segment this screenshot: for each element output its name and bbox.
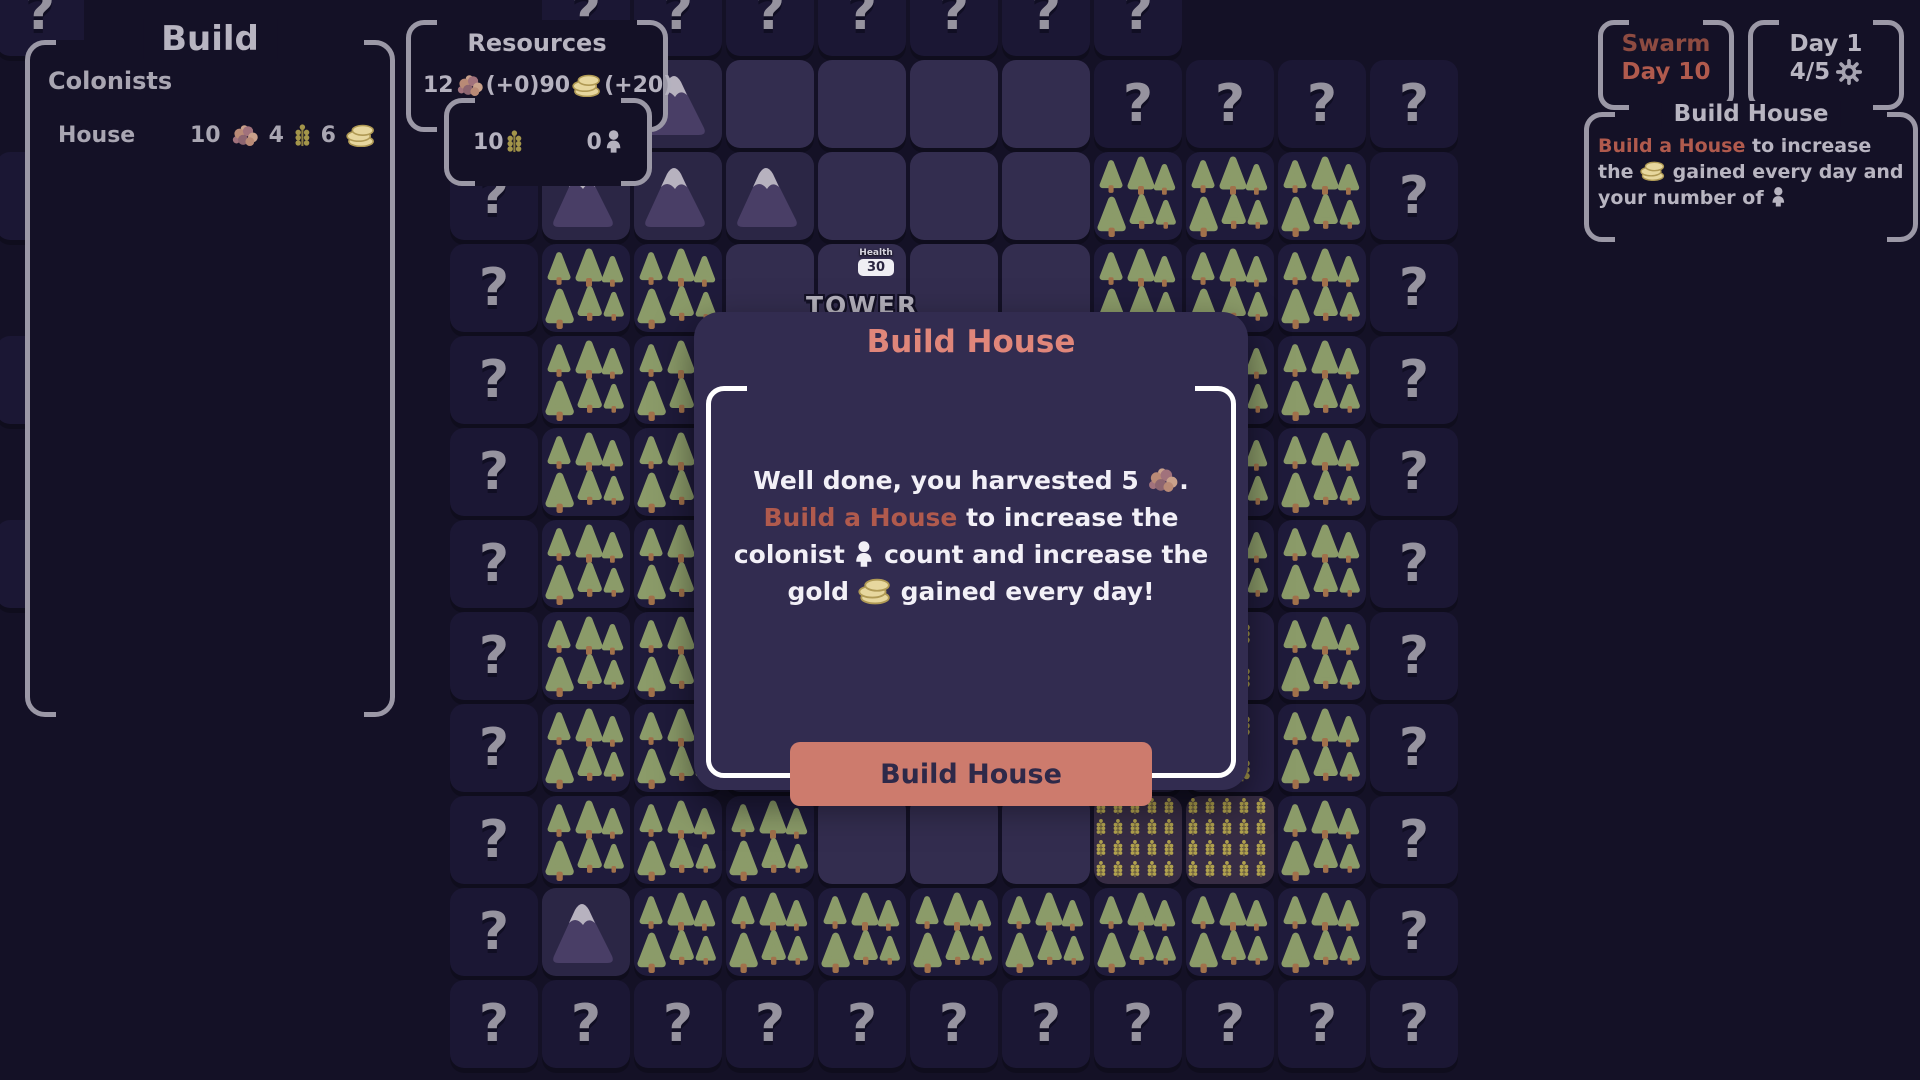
modal-body-line: Build a House to increase the [714, 499, 1228, 536]
tile-forest[interactable] [1278, 152, 1366, 240]
question-mark-glyph: ? [939, 994, 969, 1054]
coins-icon [346, 124, 376, 147]
resources-row-primary: 12 (+0) 90 (+20) [423, 73, 655, 98]
question-mark-glyph: ? [663, 994, 693, 1054]
tile-forest[interactable] [1278, 888, 1366, 976]
question-mark-glyph: ? [1399, 994, 1429, 1054]
tile-forest[interactable] [1278, 520, 1366, 608]
question-mark-glyph: ? [571, 994, 601, 1054]
tile-unknown[interactable]: ? [450, 704, 538, 792]
tile-unknown[interactable]: ? [1186, 980, 1274, 1068]
gold-resource: 90 (+20) [539, 73, 673, 98]
tile-unknown[interactable]: ? [1370, 888, 1458, 976]
tile-forest[interactable] [1186, 888, 1274, 976]
tile-forest[interactable] [1278, 336, 1366, 424]
game-stage: ??????? ????? [0, 0, 1920, 1080]
tile-unknown[interactable]: ? [450, 888, 538, 976]
wheat-icon [294, 124, 311, 147]
question-mark-glyph: ? [479, 718, 509, 778]
swarm-day: Day 10 [1603, 59, 1729, 85]
tile-forest[interactable] [1002, 888, 1090, 976]
question-mark-glyph: ? [1123, 74, 1153, 134]
tile-unknown[interactable]: ? [450, 520, 538, 608]
tile-forest[interactable] [1278, 244, 1366, 332]
tile-unknown[interactable]: ? [726, 980, 814, 1068]
tile-forest[interactable] [634, 888, 722, 976]
question-mark-glyph: ? [1031, 0, 1061, 42]
question-mark-glyph: ? [1399, 810, 1429, 870]
tile-unknown[interactable]: ? [910, 980, 998, 1068]
tile-unknown[interactable]: ? [1002, 980, 1090, 1068]
tile-unknown[interactable]: ? [1370, 980, 1458, 1068]
build-item-label: House [58, 123, 135, 148]
question-mark-glyph: ? [755, 994, 785, 1054]
question-mark-glyph: ? [479, 442, 509, 502]
day-progress-row: 4/5 [1753, 59, 1899, 85]
tile-cleared[interactable] [726, 60, 814, 148]
day-progress: 4/5 [1790, 59, 1830, 85]
question-mark-glyph: ? [1307, 994, 1337, 1054]
resources-row-secondary: 10 0 [473, 103, 623, 181]
question-mark-glyph: ? [939, 0, 969, 42]
resources-subpanel: 10 0 [444, 98, 652, 186]
question-mark-glyph: ? [1399, 74, 1429, 134]
tile-wheat-field[interactable] [1186, 796, 1274, 884]
wood-resource: 12 (+0) [423, 73, 539, 98]
tile-unknown[interactable]: ? [1094, 60, 1182, 148]
question-mark-glyph: ? [479, 534, 509, 594]
question-mark-glyph: ? [1307, 74, 1337, 134]
tile-cleared[interactable] [1002, 152, 1090, 240]
question-mark-glyph: ? [1399, 350, 1429, 410]
tile-forest[interactable] [910, 888, 998, 976]
build-house-info-panel: Build House Build a House to increase th… [1584, 112, 1918, 242]
tile-unknown[interactable]: ? [450, 336, 538, 424]
tile-unknown[interactable]: ? [1370, 152, 1458, 240]
tile-forest[interactable] [542, 612, 630, 700]
question-mark-glyph: ? [1123, 0, 1153, 42]
tile-unknown[interactable]: ? [450, 796, 538, 884]
tile-forest[interactable] [542, 428, 630, 516]
tile-forest[interactable] [1186, 152, 1274, 240]
tile-unknown[interactable]: ? [542, 980, 630, 1068]
tile-forest[interactable] [726, 796, 814, 884]
tile-cleared[interactable] [818, 60, 906, 148]
tile-mountain[interactable] [542, 888, 630, 976]
tower-health-badge: Health30 [858, 248, 894, 276]
tile-unknown[interactable]: ? [1278, 980, 1366, 1068]
question-mark-glyph: ? [479, 810, 509, 870]
tile-forest[interactable] [542, 520, 630, 608]
info-panel-title: Build House [1662, 101, 1841, 127]
person-icon [853, 541, 875, 567]
modal-body: Well done, you harvested 5 . Build a Hou… [714, 462, 1228, 610]
coins-icon [572, 74, 602, 97]
resources-title: Resources [411, 29, 663, 57]
tile-cleared[interactable] [818, 152, 906, 240]
tile-cleared[interactable] [1002, 796, 1090, 884]
wheat-icon [506, 130, 523, 153]
tile-forest[interactable] [818, 888, 906, 976]
question-mark-glyph: ? [479, 350, 509, 410]
wheat-resource: 10 [473, 130, 522, 155]
person-icon [1770, 187, 1787, 207]
question-mark-glyph: ? [1215, 74, 1245, 134]
tile-mountain[interactable] [726, 152, 814, 240]
modal-title: Build House [694, 324, 1248, 360]
tile-unknown[interactable]: ? [1370, 796, 1458, 884]
question-mark-glyph: ? [1215, 994, 1245, 1054]
gear-icon[interactable] [1836, 59, 1862, 85]
tile-unknown[interactable]: ? [818, 0, 906, 56]
question-mark-glyph: ? [1399, 718, 1429, 778]
question-mark-glyph: ? [25, 0, 55, 42]
tile-unknown[interactable]: ? [1370, 244, 1458, 332]
berries-icon [1147, 467, 1179, 493]
question-mark-glyph: ? [1399, 902, 1429, 962]
coins-icon [858, 578, 892, 604]
tile-unknown[interactable]: ? [1370, 612, 1458, 700]
question-mark-glyph: ? [1399, 626, 1429, 686]
day-counter: Day 1 [1753, 31, 1899, 57]
question-mark-glyph: ? [1123, 994, 1153, 1054]
question-mark-glyph: ? [847, 0, 877, 42]
info-panel-body: Build a House to increase the gained eve… [1598, 133, 1907, 211]
tile-cleared[interactable] [910, 60, 998, 148]
question-mark-glyph: ? [1031, 994, 1061, 1054]
tile-cleared[interactable] [910, 796, 998, 884]
tile-forest[interactable] [542, 796, 630, 884]
tile-unknown[interactable]: ? [1186, 60, 1274, 148]
tile-forest[interactable] [1094, 152, 1182, 240]
tile-unknown[interactable]: ? [1370, 704, 1458, 792]
tile-unknown[interactable]: ? [1278, 60, 1366, 148]
tile-unknown[interactable]: ? [1370, 428, 1458, 516]
question-mark-glyph: ? [479, 994, 509, 1054]
modal-body-line: gold gained every day! [714, 573, 1228, 610]
tile-forest[interactable] [726, 888, 814, 976]
build-house-button[interactable]: Build House [790, 742, 1152, 806]
tile-unknown[interactable]: ? [1094, 0, 1182, 56]
swarm-panel: Swarm Day 10 [1598, 20, 1734, 110]
berries-icon [456, 74, 484, 97]
tile-wheat-field[interactable] [1094, 796, 1182, 884]
question-mark-glyph: ? [479, 626, 509, 686]
tile-unknown[interactable]: ? [1002, 0, 1090, 56]
tile-forest[interactable] [1278, 428, 1366, 516]
swarm-title: Swarm [1603, 31, 1729, 57]
question-mark-glyph: ? [847, 994, 877, 1054]
berries-icon [231, 124, 259, 147]
tile-cleared[interactable] [1002, 60, 1090, 148]
tile-unknown[interactable]: ? [1370, 520, 1458, 608]
coins-icon [1640, 161, 1666, 181]
question-mark-glyph: ? [1399, 442, 1429, 502]
question-mark-glyph: ? [1399, 166, 1429, 226]
person-icon [604, 130, 623, 153]
day-panel: Day 1 4/5 [1748, 20, 1904, 110]
tile-forest[interactable] [542, 244, 630, 332]
tile-forest[interactable] [542, 336, 630, 424]
colonists-section-label: Colonists [48, 67, 172, 95]
modal-body-line: colonist count and increase the [714, 536, 1228, 573]
tile-unknown[interactable]: ? [634, 980, 722, 1068]
tile-cleared[interactable] [818, 796, 906, 884]
question-mark-glyph: ? [479, 902, 509, 962]
build-panel-title: Build [143, 19, 277, 59]
tile-unknown[interactable]: ? [450, 428, 538, 516]
tile-cleared[interactable] [910, 152, 998, 240]
tile-unknown[interactable]: ? [1370, 336, 1458, 424]
question-mark-glyph: ? [755, 0, 785, 42]
colonist-resource: 0 [586, 130, 623, 155]
tile-unknown[interactable]: ? [450, 980, 538, 1068]
question-mark-glyph: ? [479, 258, 509, 318]
tile-unknown[interactable]: ? [1094, 980, 1182, 1068]
tile-unknown[interactable]: ? [910, 0, 998, 56]
tile-unknown[interactable]: ? [1370, 60, 1458, 148]
tile-unknown[interactable]: ? [450, 244, 538, 332]
tile-forest[interactable] [1278, 612, 1366, 700]
tile-forest[interactable] [1278, 796, 1366, 884]
build-item-costs: 10 4 6 [190, 123, 376, 148]
question-mark-glyph: ? [1399, 258, 1429, 318]
tile-forest[interactable] [542, 704, 630, 792]
build-panel: Build Colonists House 10 4 6 [25, 40, 395, 717]
build-house-modal: Build House Well done, you harvested 5 .… [694, 312, 1248, 790]
tile-forest[interactable] [1278, 704, 1366, 792]
tile-unknown[interactable]: ? [726, 0, 814, 56]
tile-forest[interactable] [1094, 888, 1182, 976]
tile-unknown[interactable]: ? [450, 612, 538, 700]
modal-body-line: Well done, you harvested 5 . [714, 462, 1228, 499]
question-mark-glyph: ? [1399, 534, 1429, 594]
tile-unknown[interactable]: ? [818, 980, 906, 1068]
tile-forest[interactable] [634, 796, 722, 884]
build-item-house[interactable]: House 10 4 6 [58, 123, 376, 148]
